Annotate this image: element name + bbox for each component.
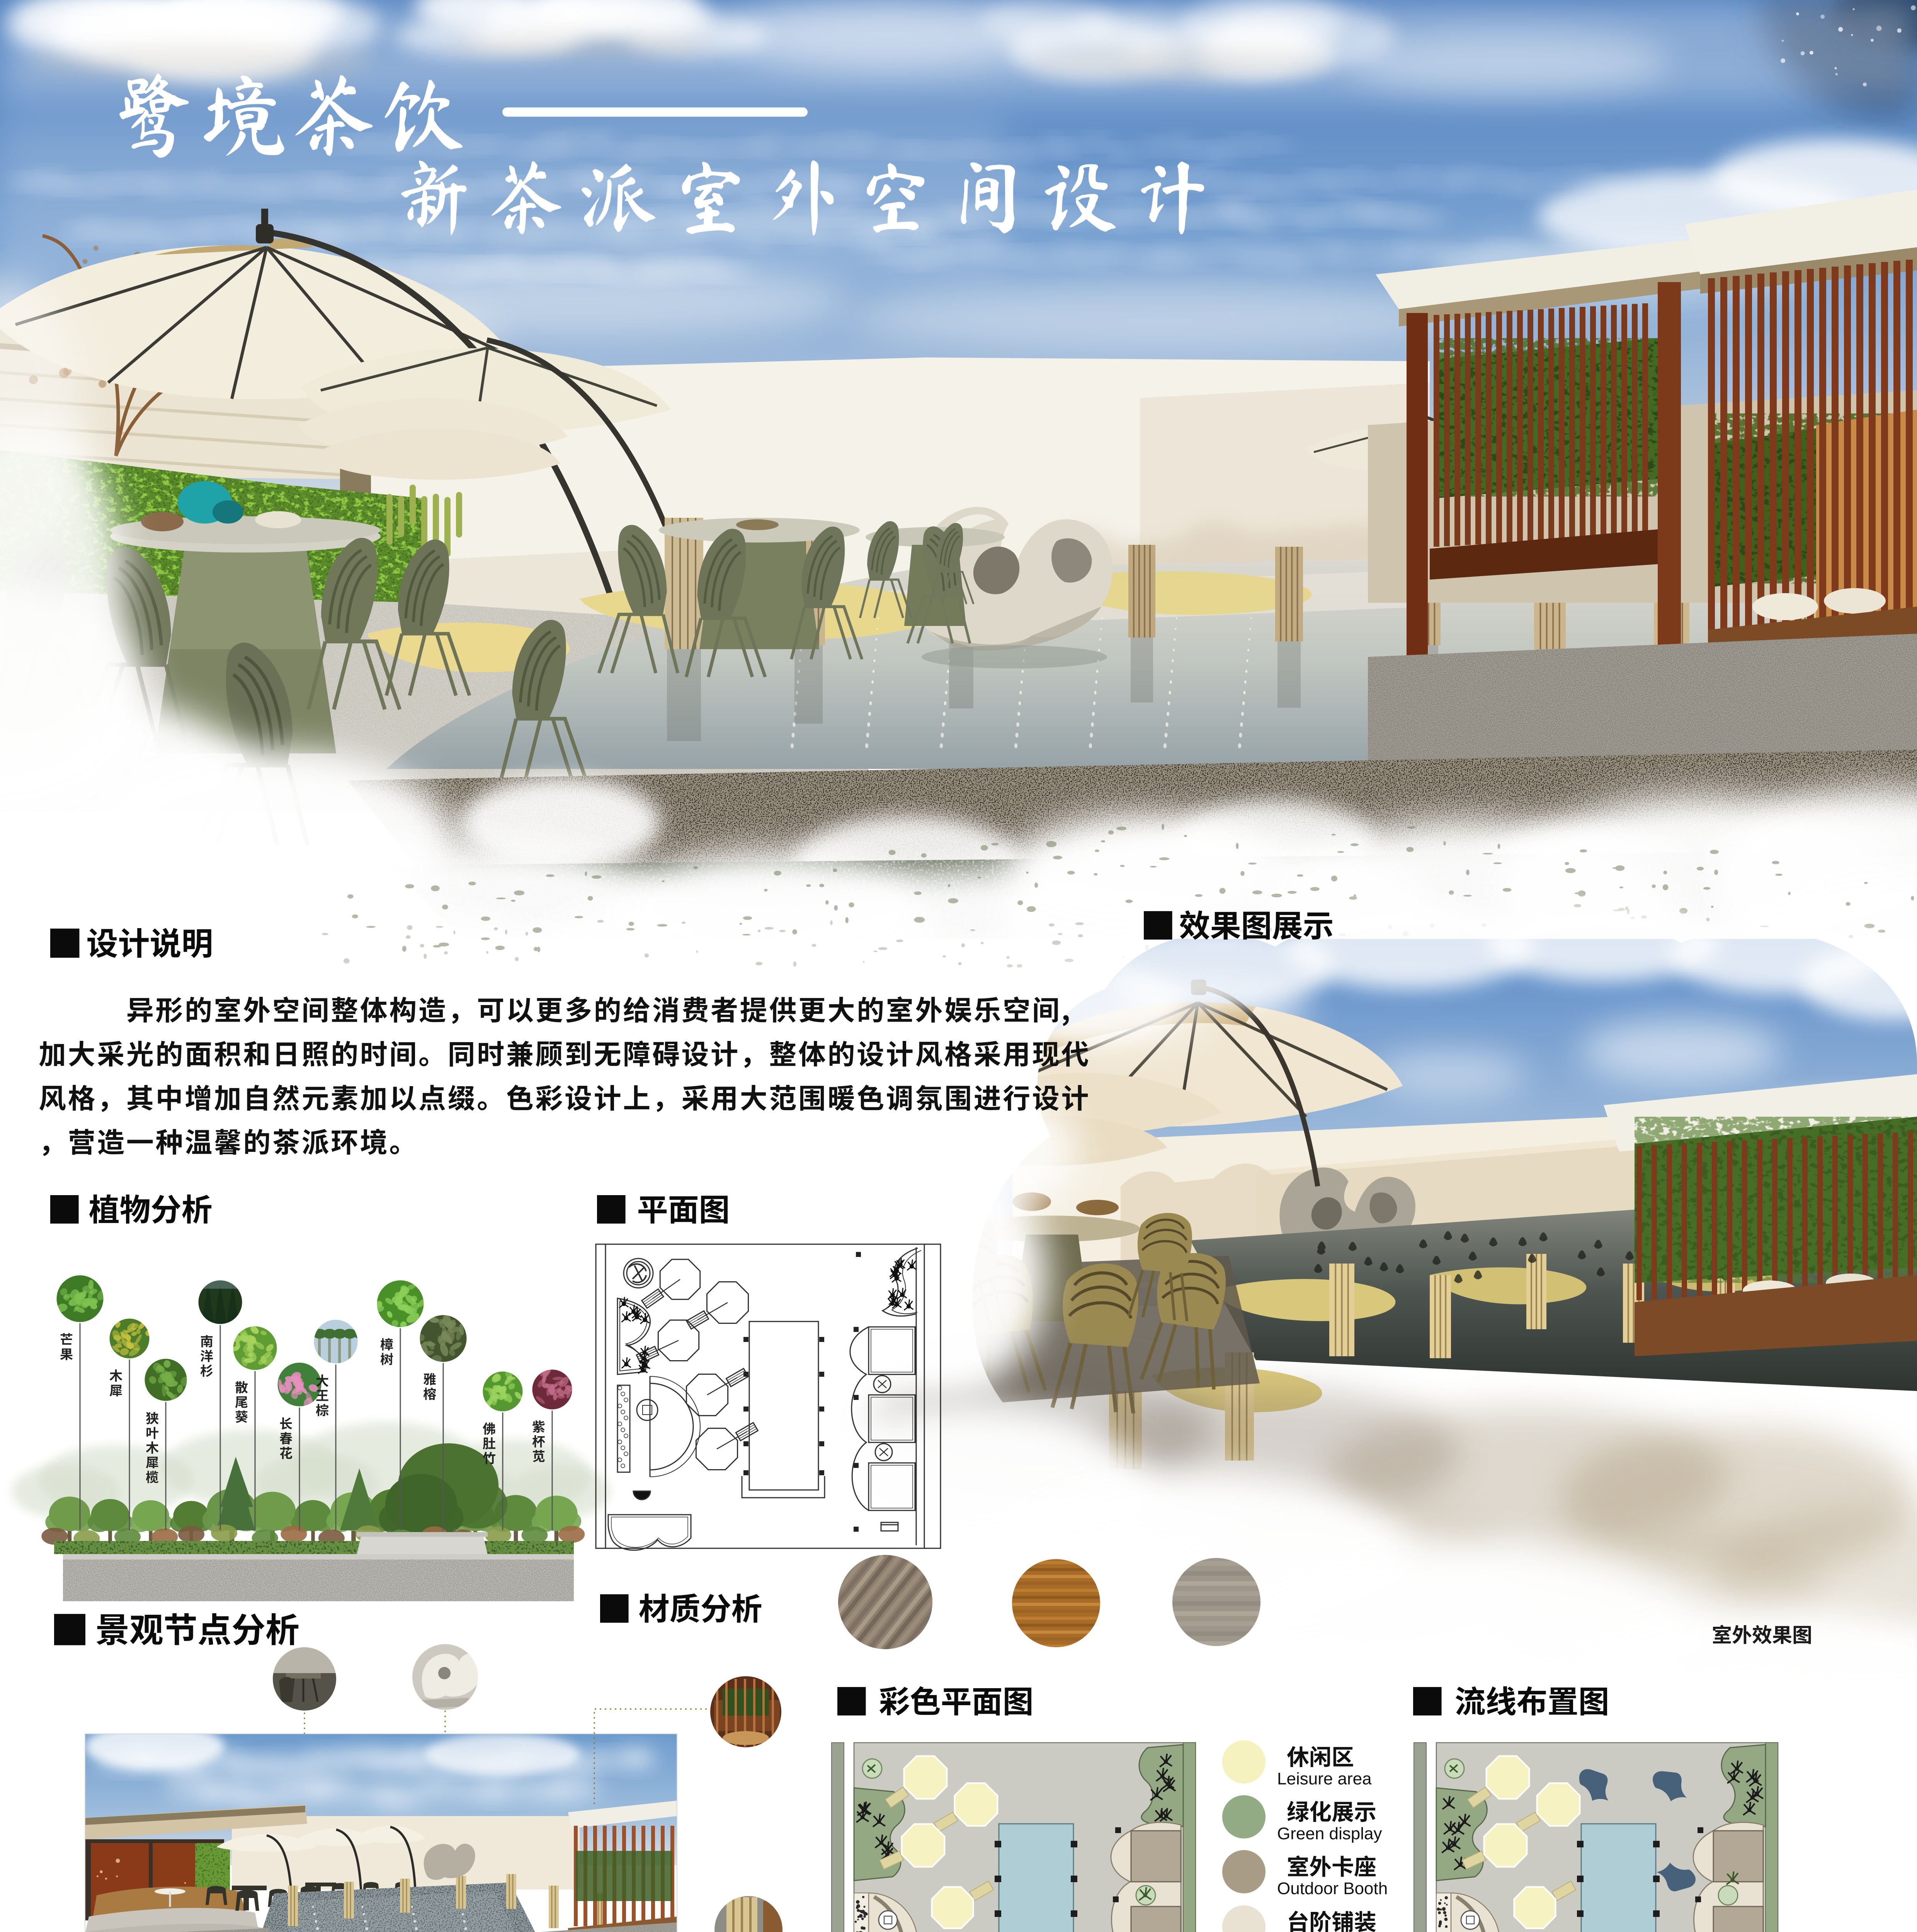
svg-text:Green display: Green display xyxy=(1277,1824,1382,1843)
svg-text:Leisure area: Leisure area xyxy=(1277,1769,1372,1788)
svg-text:Outdoor Booth: Outdoor Booth xyxy=(1277,1879,1388,1898)
